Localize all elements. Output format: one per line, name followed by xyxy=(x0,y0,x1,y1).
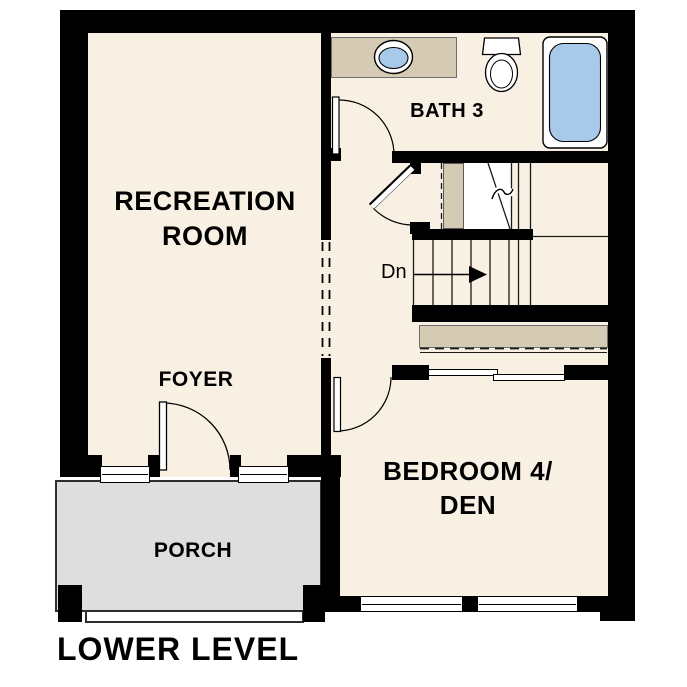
wall-front-d xyxy=(287,455,341,477)
window-foyer-right xyxy=(238,466,289,483)
bedroom-den-label-line2: DEN xyxy=(356,488,580,522)
window-bedroom-right xyxy=(477,596,578,612)
plan-title: LOWER LEVEL xyxy=(57,629,299,670)
closet-shelf xyxy=(419,325,608,348)
wall-front-a xyxy=(60,455,102,477)
wall-bedroom-corner xyxy=(600,596,635,621)
wall-closet-front-right xyxy=(564,365,635,380)
wall-exterior-top xyxy=(60,10,635,33)
bath-label: BATH 3 xyxy=(386,99,508,125)
porch-post-right xyxy=(303,585,325,622)
wall-hall-lower xyxy=(321,358,331,458)
porch-label: PORCH xyxy=(121,538,265,565)
recreation-room-label-line1: RECREATION xyxy=(86,184,324,219)
wall-stair-jamb-top xyxy=(410,163,421,174)
stairs-down-label: Dn xyxy=(381,260,407,286)
wall-stair-bottom xyxy=(412,305,635,322)
wall-bedroom-bottom-b xyxy=(462,596,478,612)
porch-step xyxy=(85,610,304,623)
wall-stair-mid xyxy=(412,229,533,240)
recreation-room-label-line2: ROOM xyxy=(86,219,324,254)
bedroom-den-label: BEDROOM 4/ DEN xyxy=(356,454,580,522)
window-bedroom-left xyxy=(360,596,463,612)
closet-slider-left xyxy=(428,369,498,376)
wall-exterior-left xyxy=(60,10,88,477)
wall-bedroom-bottom-a xyxy=(321,596,362,612)
wall-closet-front-left xyxy=(392,365,429,380)
foyer-label: FOYER xyxy=(134,367,258,394)
floor-plan-page: { "title": "LOWER LEVEL", "rooms": { "re… xyxy=(0,0,687,687)
recreation-room-label: RECREATION ROOM xyxy=(86,184,324,254)
closet-slider-right xyxy=(493,374,565,381)
porch-post-left xyxy=(58,585,82,622)
window-foyer-left xyxy=(100,466,150,483)
bedroom-den-label-line1: BEDROOM 4/ xyxy=(356,454,580,488)
wall-stair-jamb-bottom xyxy=(410,222,430,234)
wall-bath-bottom xyxy=(392,151,635,163)
stair-landing-strip xyxy=(443,163,464,229)
wall-bath-door-jamb xyxy=(329,148,341,161)
vanity-counter xyxy=(331,37,457,78)
